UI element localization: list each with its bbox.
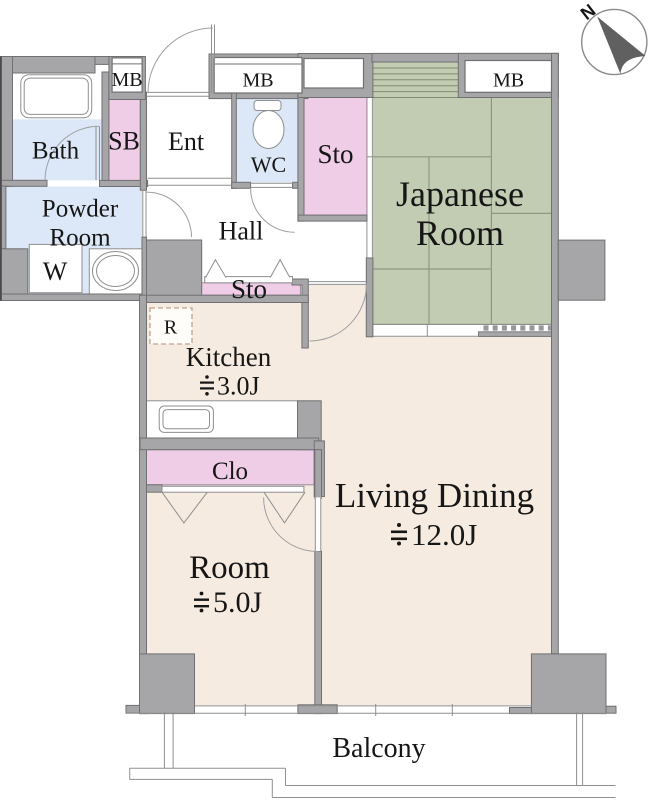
svg-text:R: R (164, 317, 178, 339)
svg-text:Hall: Hall (219, 217, 264, 246)
svg-text:Room: Room (49, 225, 111, 252)
svg-text:MB: MB (493, 70, 524, 92)
svg-text:Room: Room (189, 550, 270, 586)
svg-text:MB: MB (111, 69, 142, 91)
svg-text:Ent: Ent (168, 127, 205, 156)
svg-text:W: W (43, 257, 68, 286)
svg-text:Japanese: Japanese (396, 174, 524, 214)
svg-text:Clo: Clo (212, 458, 248, 485)
svg-text:Kitchen: Kitchen (186, 342, 272, 372)
svg-text:MB: MB (242, 70, 273, 92)
svg-text:Balcony: Balcony (332, 733, 425, 764)
svg-text:Living Dining: Living Dining (335, 476, 534, 515)
svg-text:Powder: Powder (42, 196, 119, 223)
svg-text:WC: WC (251, 152, 286, 177)
svg-text:SB: SB (108, 127, 140, 156)
svg-text:Sto: Sto (231, 274, 267, 304)
svg-text:Bath: Bath (32, 138, 80, 165)
svg-text:3.0J: 3.0J (217, 372, 260, 401)
svg-text:5.0J: 5.0J (213, 586, 263, 619)
svg-text:12.0J: 12.0J (411, 517, 477, 552)
svg-text:Room: Room (416, 213, 504, 253)
svg-text:Sto: Sto (317, 139, 353, 169)
